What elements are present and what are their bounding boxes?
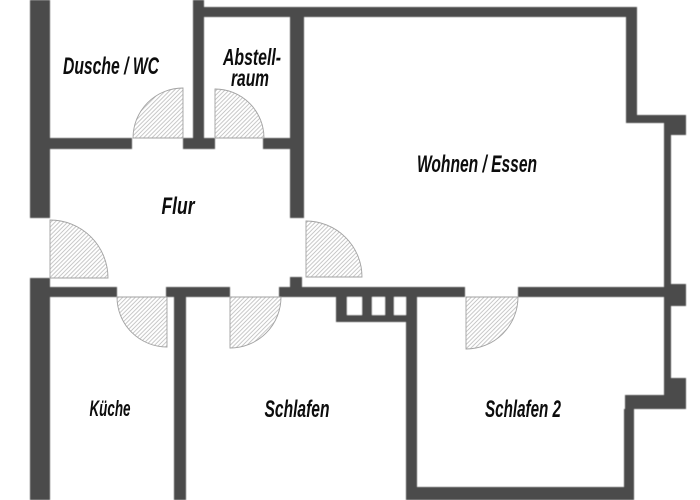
svg-text:Schlafen: Schlafen [265,396,330,423]
svg-text:Küche: Küche [90,396,131,421]
svg-text:Wohnen / Essen: Wohnen / Essen [417,151,537,178]
svg-text:Flur: Flur [162,193,196,220]
svg-text:raum: raum [231,65,269,91]
svg-text:Dusche / WC: Dusche / WC [63,53,159,80]
svg-text:Schlafen 2: Schlafen 2 [485,396,561,423]
